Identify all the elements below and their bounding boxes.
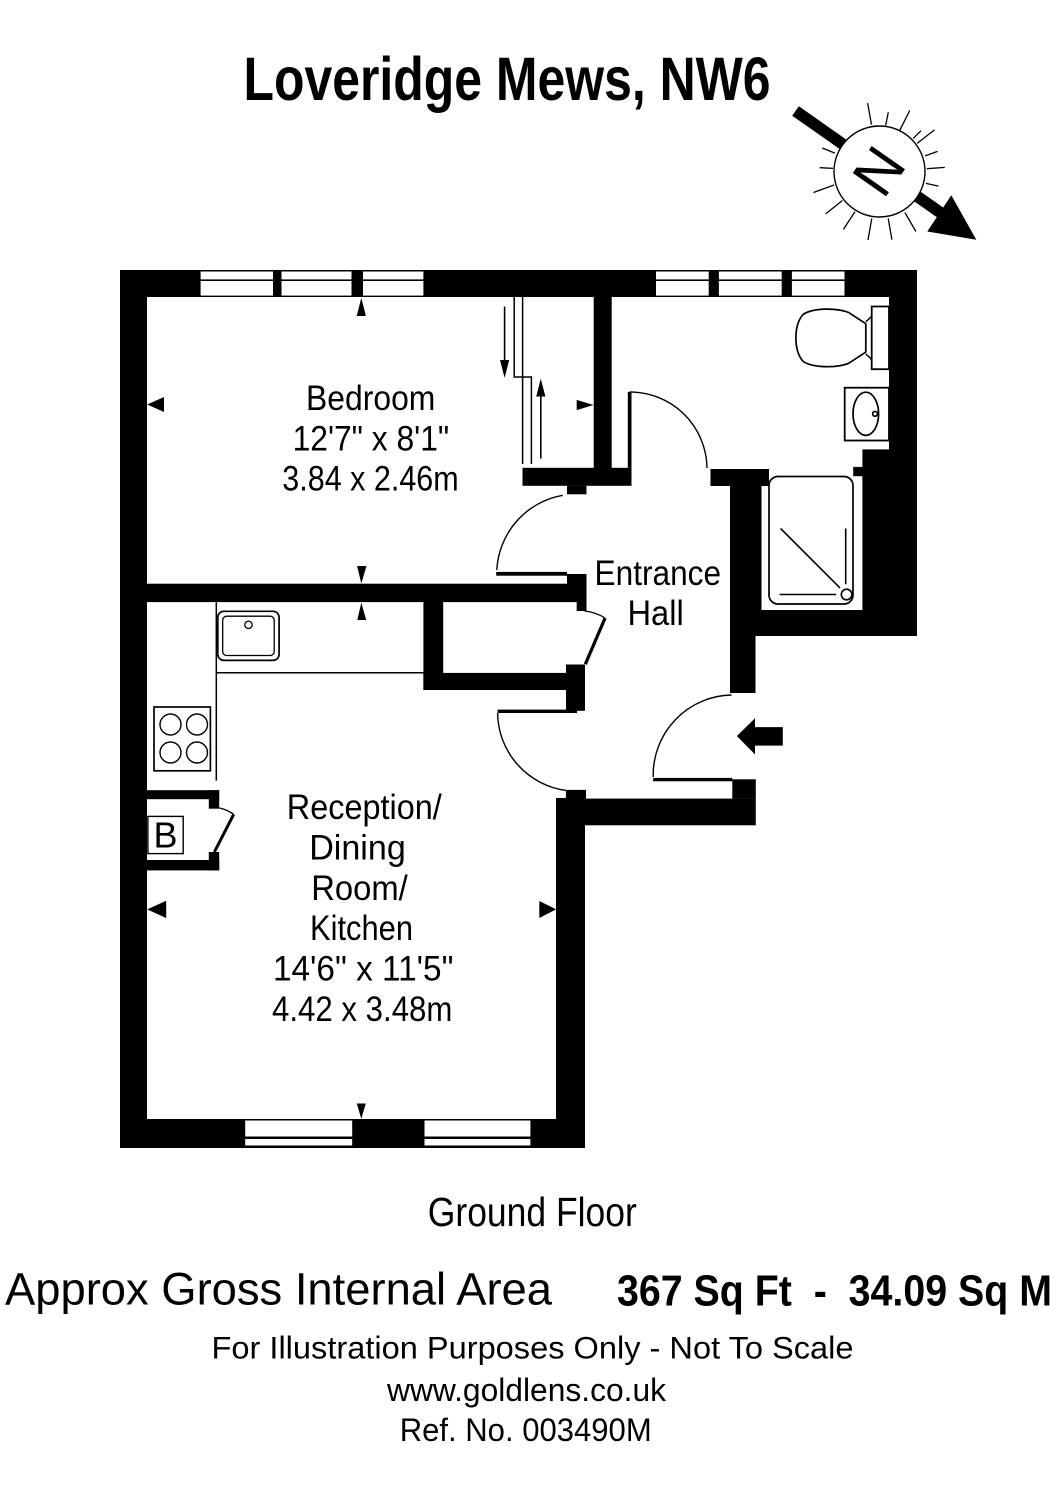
svg-text:Reception/: Reception/: [287, 787, 442, 827]
svg-text:B: B: [153, 815, 177, 856]
svg-text:14'6" x 11'5": 14'6" x 11'5": [273, 948, 454, 988]
svg-text:Approx Gross Internal Area: Approx Gross Internal Area: [5, 1263, 553, 1314]
svg-text:Entrance: Entrance: [595, 553, 722, 593]
svg-text:Bedroom: Bedroom: [306, 378, 435, 418]
svg-text:Hall: Hall: [627, 593, 683, 633]
svg-text:Dining: Dining: [309, 827, 406, 867]
svg-text:Kitchen: Kitchen: [310, 908, 413, 948]
svg-text:Ref. No. 003490M: Ref. No. 003490M: [400, 1412, 652, 1448]
svg-text:For Illustration Purposes Only: For Illustration Purposes Only - Not To …: [212, 1330, 854, 1366]
svg-text:www.goldlens.co.uk: www.goldlens.co.uk: [386, 1372, 667, 1408]
svg-text:Ground Floor: Ground Floor: [428, 1189, 637, 1235]
svg-text:12'7" x 8'1": 12'7" x 8'1": [293, 418, 450, 458]
svg-text:367 Sq Ft - 34.09 Sq M: 367 Sq Ft - 34.09 Sq M: [617, 1267, 1052, 1316]
svg-text:Room/: Room/: [311, 868, 408, 908]
svg-text:3.84 x 2.46m: 3.84 x 2.46m: [282, 459, 458, 499]
svg-text:Loveridge Mews, NW6: Loveridge Mews, NW6: [244, 45, 771, 113]
svg-text:4.42 x 3.48m: 4.42 x 3.48m: [272, 989, 452, 1029]
